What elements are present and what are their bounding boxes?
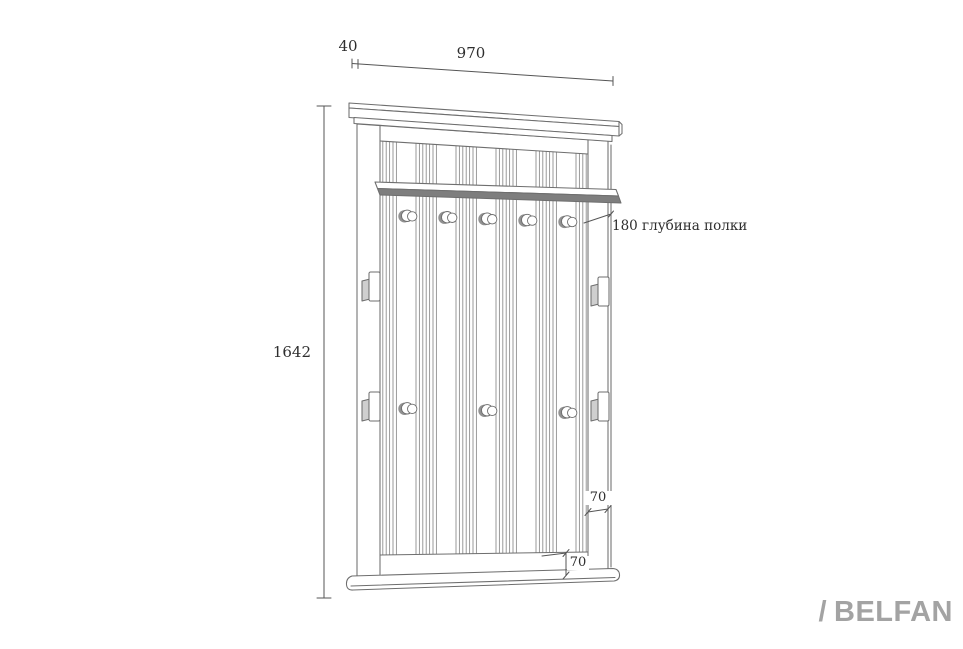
technical-drawing-page: 40 970 1642 180 глубина полки 70 70 /BEL… bbox=[0, 0, 963, 649]
dim-label-bottom-rail-70: 70 bbox=[567, 556, 589, 570]
coat-hook bbox=[558, 216, 577, 228]
dimension-top-width bbox=[352, 59, 613, 86]
slat-panel bbox=[380, 141, 588, 555]
dim-label-height-1642: 1642 bbox=[255, 344, 311, 361]
logo-slash-icon: / bbox=[818, 596, 827, 629]
coat-hook bbox=[438, 212, 457, 224]
coat-hook bbox=[478, 213, 497, 225]
coat-hook bbox=[518, 214, 537, 226]
dim-label-depth-40: 40 bbox=[330, 38, 366, 55]
coat-hook bbox=[558, 407, 577, 419]
belfan-logo: /BELFAN bbox=[795, 596, 953, 629]
shelf-depth-note: 180 глубина полки bbox=[612, 218, 747, 234]
coat-hook bbox=[478, 405, 497, 417]
furniture-line-drawing bbox=[0, 0, 963, 649]
coat-hook bbox=[398, 210, 417, 222]
coat-hook bbox=[398, 403, 417, 415]
dim-label-stile-70: 70 bbox=[584, 491, 612, 505]
logo-text: BELFAN bbox=[834, 596, 953, 628]
dim-label-width-970: 970 bbox=[441, 45, 501, 62]
dimension-left-height bbox=[317, 106, 331, 598]
